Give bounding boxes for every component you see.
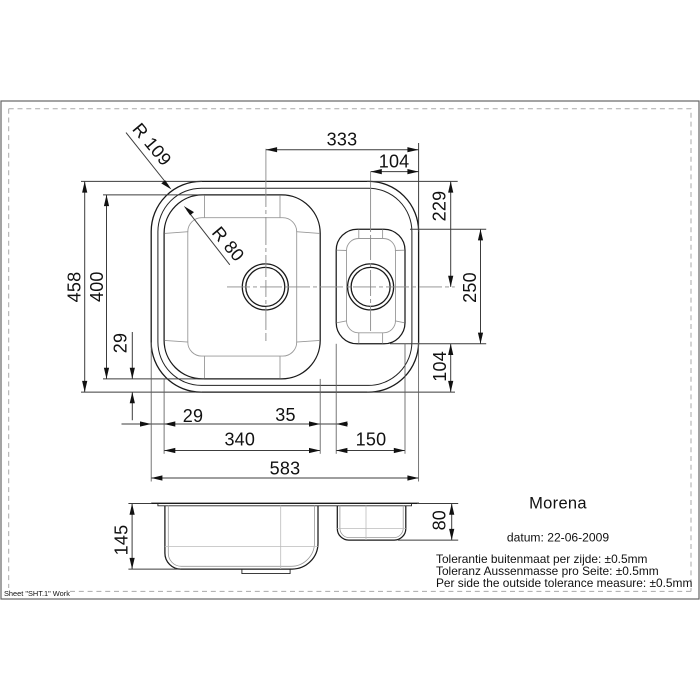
svg-text:250: 250 bbox=[460, 272, 480, 303]
svg-text:35: 35 bbox=[275, 405, 295, 425]
svg-text:583: 583 bbox=[270, 458, 301, 478]
svg-text:333: 333 bbox=[327, 129, 358, 149]
svg-text:Per side the outside tolerance: Per side the outside tolerance measure: … bbox=[436, 576, 692, 590]
svg-text:104: 104 bbox=[379, 151, 410, 171]
svg-text:145: 145 bbox=[112, 525, 132, 556]
svg-text:150: 150 bbox=[356, 430, 387, 450]
svg-text:400: 400 bbox=[87, 271, 107, 302]
svg-text:Morena: Morena bbox=[529, 495, 587, 513]
svg-text:29: 29 bbox=[183, 406, 203, 426]
svg-text:229: 229 bbox=[429, 191, 449, 222]
svg-text:29: 29 bbox=[110, 333, 130, 353]
svg-text:458: 458 bbox=[65, 272, 85, 303]
svg-text:datum: 22-06-2009: datum: 22-06-2009 bbox=[507, 531, 609, 545]
svg-text:80: 80 bbox=[429, 510, 449, 530]
svg-text:340: 340 bbox=[224, 430, 255, 450]
svg-text:Sheet "SHT.1" Work: Sheet "SHT.1" Work bbox=[4, 589, 70, 598]
svg-text:104: 104 bbox=[430, 351, 450, 382]
